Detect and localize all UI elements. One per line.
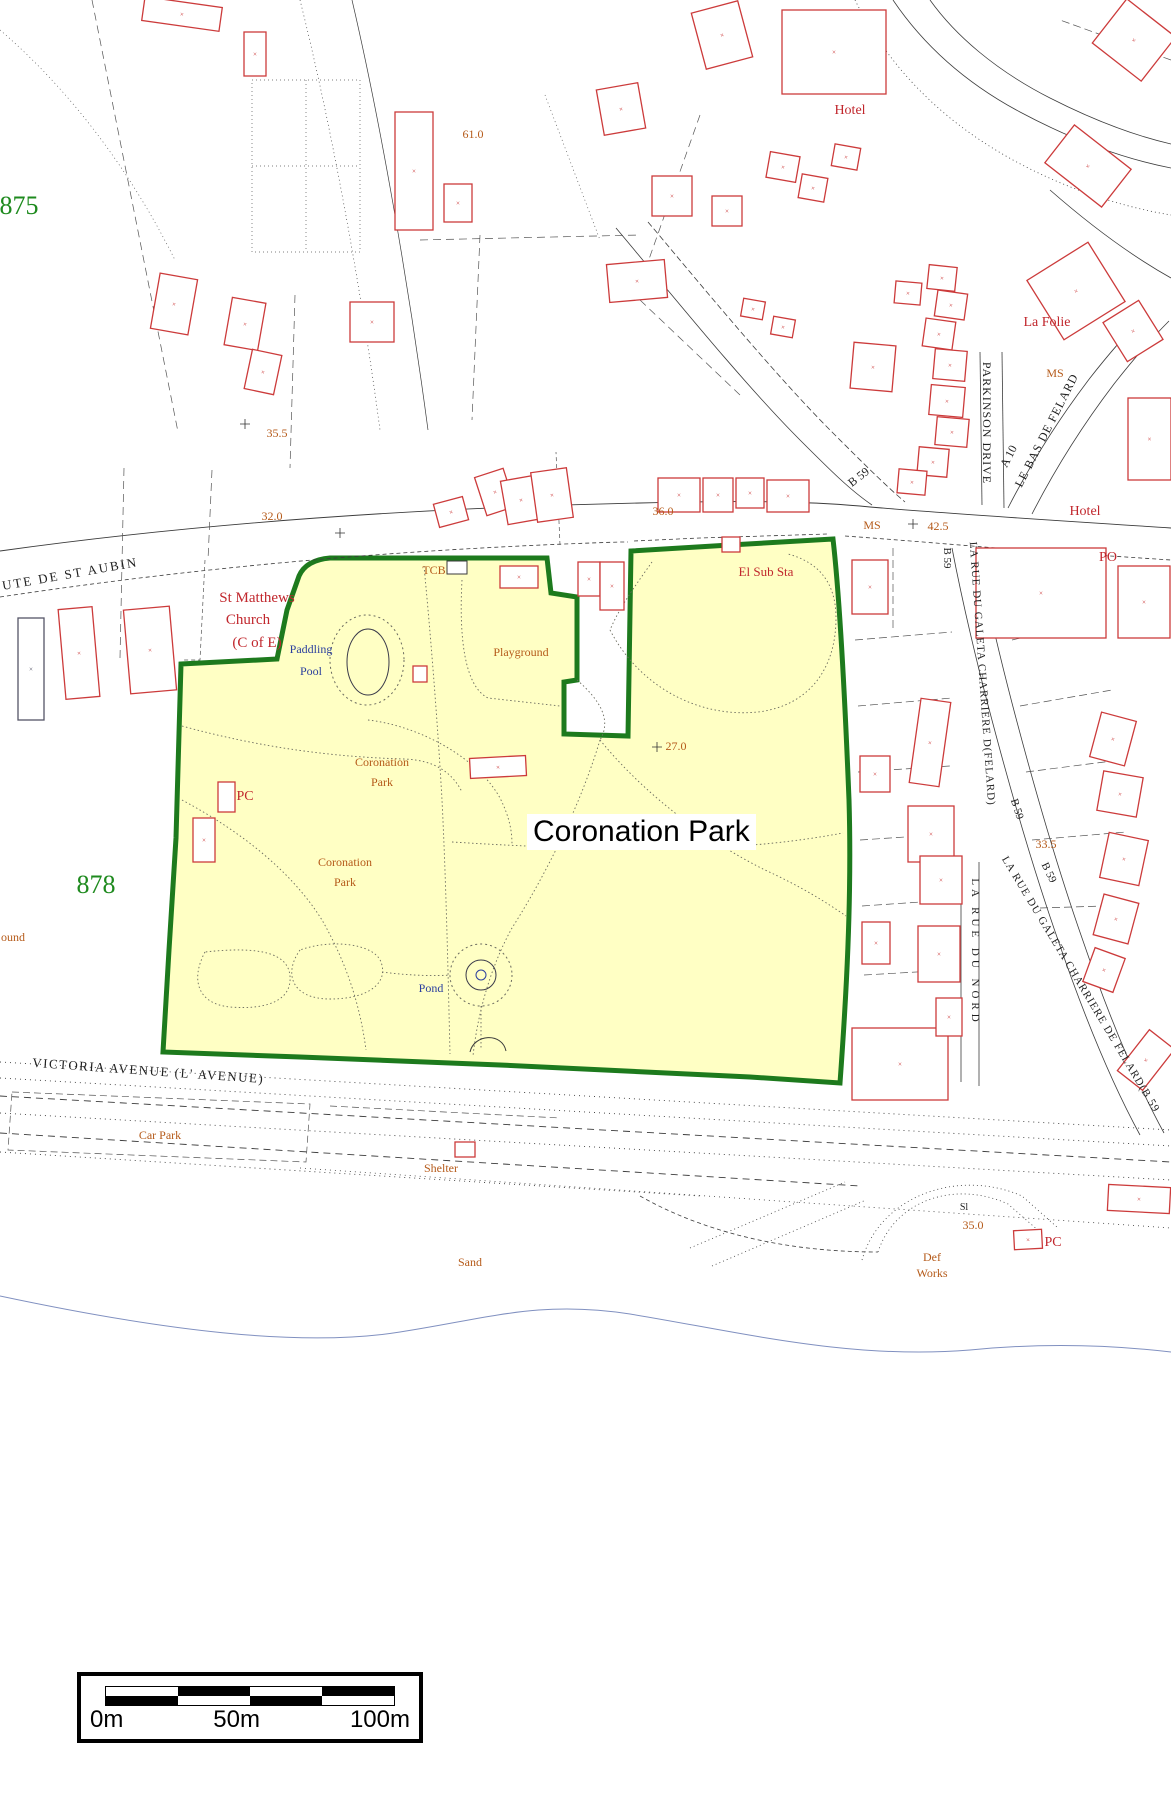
- label-pond: Pond: [419, 981, 444, 995]
- building-seed-mark: ×: [874, 940, 878, 948]
- road-line: [640, 1196, 878, 1252]
- scale-segment: [322, 1687, 394, 1696]
- building: [413, 666, 427, 682]
- label-car-park: Car Park: [139, 1128, 181, 1142]
- label-rue-galeta-south: LA RUE DU GALETA CHARRIERE DE FELARD(B 5…: [999, 854, 1162, 1114]
- building-seed-mark: ×: [587, 576, 591, 584]
- label-coronation-park-ne-line1: Coronation: [355, 755, 409, 769]
- scale-segment: [250, 1696, 322, 1705]
- parcel-boundary: [545, 95, 600, 240]
- bench-mark: [240, 419, 250, 429]
- label-b59-south-vertical: B 59: [941, 547, 953, 569]
- label-spot-61-0: 61.0: [463, 127, 484, 141]
- label-parkinson-drive: PARKINSON DRIVE: [980, 362, 994, 484]
- building-seed-mark: ×: [456, 200, 460, 208]
- building-seed-mark: ×: [148, 646, 153, 654]
- parcel-boundary: [208, 470, 212, 560]
- building-seed-mark: ×: [948, 361, 953, 369]
- label-area-875: 875: [0, 191, 39, 220]
- building-seed-mark: ×: [950, 428, 955, 436]
- label-rue-du-nord: LA RUE DU NORD: [969, 878, 981, 1025]
- map-page: ××××××××××××××××××××××××××××××××××××××××…: [0, 0, 1171, 1810]
- road-line: [690, 1182, 845, 1248]
- road-line: [300, 1168, 1171, 1228]
- road-line: [712, 1200, 866, 1266]
- scale-bar-row-top: [106, 1687, 394, 1696]
- parcel-boundary: [8, 1092, 310, 1162]
- label-pc-park: PC: [236, 789, 253, 804]
- label-spot-42-5: 42.5: [928, 519, 949, 533]
- building-seed-mark: ×: [947, 1014, 951, 1022]
- building-seed-mark: ×: [931, 458, 936, 466]
- label-area-878: 878: [77, 870, 116, 899]
- building-seed-mark: ×: [910, 478, 915, 486]
- parcel-boundary: [290, 295, 295, 468]
- parcel-boundary: [640, 300, 740, 395]
- label-ms-north: MS: [1046, 366, 1063, 380]
- label-po: PO: [1099, 550, 1117, 565]
- building-seed-mark: ×: [412, 168, 416, 176]
- parcel-boundary: [472, 235, 480, 420]
- label-shelter: Shelter: [424, 1161, 458, 1175]
- building-seed-mark: ×: [937, 951, 941, 959]
- tcb-box: [447, 561, 467, 574]
- building-seed-mark: ×: [1026, 1236, 1030, 1244]
- label-pc-south: PC: [1044, 1235, 1061, 1250]
- label-le-bas-de-felard: LE BAS DE FELARD: [1012, 371, 1082, 489]
- label-hotel-east: Hotel: [1069, 504, 1100, 519]
- parcel-boundary: [182, 560, 205, 660]
- road-line: [300, 0, 380, 430]
- label-spot-35-5: 35.5: [267, 426, 288, 440]
- label-spot-27-0: 27.0: [666, 739, 687, 753]
- road-line: [0, 1113, 1171, 1180]
- building-seed-mark: ×: [1137, 1195, 1141, 1203]
- label-def-works-line2: Works: [916, 1266, 947, 1280]
- label-coronation-park-ne-line2: Park: [371, 775, 393, 789]
- scale-segment: [178, 1696, 250, 1705]
- label-b59-galeta-2: B 59: [1039, 861, 1059, 886]
- park-title-overlay: Coronation Park: [527, 814, 756, 850]
- label-spot-36-0: 36.0: [653, 504, 674, 518]
- map-canvas: ××××××××××××××××××××××××××××××××××××××××…: [0, 0, 1171, 1810]
- building-seed-mark: ×: [929, 831, 933, 839]
- building-seed-mark: ×: [29, 666, 33, 674]
- label-spot-33-5: 33.5: [1036, 837, 1057, 851]
- label-tcb: TCB: [422, 563, 445, 577]
- building-seed-mark: ×: [786, 493, 790, 501]
- bench-mark: [908, 519, 918, 529]
- building-seed-mark: ×: [748, 490, 752, 498]
- parcel-boundary: [1020, 690, 1112, 706]
- label-ground-partial: ound: [1, 930, 25, 944]
- label-def-works-line1: Def: [923, 1250, 941, 1264]
- label-coronation-park-sw-line1: Coronation: [318, 855, 372, 869]
- scale-bar: 0m 50m 100m: [77, 1672, 423, 1743]
- building-seed-mark: ×: [253, 51, 257, 59]
- bench-mark: [335, 528, 345, 538]
- building-seed-mark: ×: [939, 877, 943, 885]
- label-el-sub-sta: El Sub Sta: [739, 564, 794, 579]
- building-seed-mark: ×: [496, 763, 500, 771]
- building-seed-mark: ×: [716, 492, 720, 500]
- parcel-boundary: [1026, 760, 1120, 772]
- road-line: [0, 1133, 860, 1186]
- building-seed-mark: ×: [370, 319, 374, 327]
- label-coronation-park-sw-line2: Park: [334, 875, 356, 889]
- label-la-folie: La Folie: [1023, 315, 1070, 330]
- scale-label-50m: 50m: [213, 1706, 260, 1734]
- building-seed-mark: ×: [77, 649, 82, 657]
- label-a-10: A 10: [997, 443, 1020, 470]
- high-water-line: [0, 1296, 1171, 1352]
- label-hotel-north: Hotel: [834, 103, 865, 118]
- scale-segment: [322, 1696, 394, 1705]
- building-seed-mark: ×: [945, 397, 950, 405]
- label-sand: Sand: [458, 1255, 482, 1269]
- label-spot-32-0: 32.0: [262, 509, 283, 523]
- building-seed-mark: ×: [873, 771, 877, 779]
- building: [218, 782, 235, 812]
- park-footpath: [577, 680, 605, 740]
- building-seed-mark: ×: [871, 363, 876, 371]
- parcel-boundary: [420, 235, 640, 240]
- building-seed-mark: ×: [1142, 599, 1146, 607]
- scale-label-0m: 0m: [90, 1706, 123, 1734]
- parcel-boundary: [0, 30, 175, 260]
- building-seed-mark: ×: [677, 492, 681, 500]
- scale-segment: [106, 1696, 178, 1705]
- building-seed-mark: ×: [670, 193, 674, 201]
- label-paddling-pool-line2: Pool: [300, 664, 323, 678]
- building-seed-mark: ×: [1039, 590, 1043, 598]
- label-st-matthews-line2: Church: [226, 612, 271, 628]
- label-ms-junction: MS: [863, 518, 880, 532]
- parcel-boundary: [855, 632, 952, 640]
- label-sl: Sl: [960, 1202, 969, 1213]
- building-seed-mark: ×: [635, 277, 640, 285]
- scale-label-100m: 100m: [350, 1706, 410, 1734]
- building-seed-mark: ×: [1148, 436, 1152, 444]
- scale-bar-graphic: [106, 1687, 394, 1705]
- building-seed-mark: ×: [906, 289, 911, 297]
- scale-bar-labels: 0m 50m 100m: [81, 1706, 419, 1734]
- building-seed-mark: ×: [898, 1061, 902, 1069]
- label-playground: Playground: [493, 645, 548, 659]
- building-seed-mark: ×: [868, 584, 872, 592]
- building-seed-mark: ×: [832, 49, 836, 57]
- parcel-boundary: [92, 0, 178, 432]
- label-victoria-avenue: VICTORIA AVENUE (L' AVENUE): [32, 1055, 265, 1086]
- scale-bar-row-bottom: [106, 1696, 394, 1705]
- building-seed-mark: ×: [517, 574, 521, 582]
- label-b59-galeta-1: B 59: [1008, 797, 1026, 821]
- road-line: [1002, 352, 1004, 508]
- label-paddling-pool-line1: Paddling: [290, 642, 333, 656]
- building-seed-mark: ×: [725, 208, 729, 216]
- scale-segment: [178, 1687, 250, 1696]
- label-st-matthews-line1: St Matthews: [219, 590, 295, 606]
- building-seed-mark: ×: [610, 583, 614, 591]
- road-line: [0, 1152, 700, 1196]
- label-route-st-aubin: ROUTE DE ST AUBIN: [0, 554, 139, 597]
- label-spot-35-0: 35.0: [963, 1218, 984, 1232]
- scale-segment: [106, 1687, 178, 1696]
- scale-segment: [250, 1687, 322, 1696]
- building: [722, 537, 740, 552]
- label-st-matthews-line3: (C of E): [232, 635, 281, 651]
- building: [455, 1142, 475, 1157]
- building-seed-mark: ×: [202, 837, 206, 845]
